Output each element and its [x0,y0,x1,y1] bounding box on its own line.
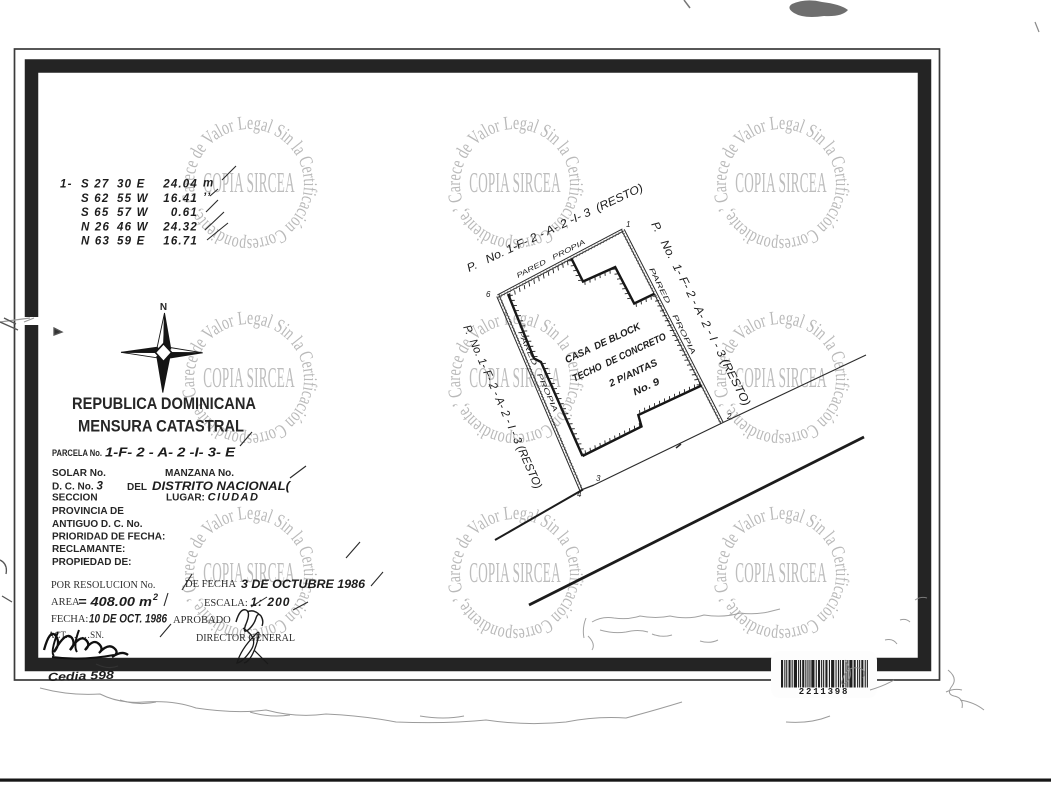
svg-text:ESCALA: 1: 200: ESCALA: 1: 200 [204,595,290,609]
svg-text:PRIORIDAD DE FECHA:: PRIORIDAD DE FECHA: [52,532,165,543]
svg-text:ANTIGUO D. C. No.: ANTIGUO D. C. No. [52,519,143,530]
svg-text:S 65: S 65 [81,207,109,219]
svg-text:MANZANA No.: MANZANA No. [165,468,234,479]
svg-text:LUGAR: CIUDAD: LUGAR: CIUDAD [166,492,259,504]
svg-text:PARCELA No.: PARCELA No. [52,448,102,459]
svg-text:2: 2 [726,412,732,421]
svg-text:30 E: 30 E [117,179,145,191]
svg-text:= 408.00 m: = 408.00 m [78,594,152,609]
svg-text:16.41: 16.41 [163,193,198,205]
svg-text:PROVINCIA DE: PROVINCIA DE [52,506,124,517]
svg-text:Cedia 598: Cedia 598 [48,670,115,684]
svg-text:59 E: 59 E [117,236,145,248]
svg-text:APROBADO: APROBADO [173,615,231,626]
svg-text:SOLAR No.: SOLAR No. [52,468,106,479]
svg-text:16.71: 16.71 [163,236,198,248]
svg-text:24.04: 24.04 [162,179,198,191]
svg-text:N: N [160,302,167,313]
svg-text:1-F- 2 - A- 2 -I- 3- E: 1-F- 2 - A- 2 -I- 3- E [105,446,236,460]
svg-text:SECCION: SECCION [52,493,98,504]
svg-text:MENSURA CATASTRAL: MENSURA CATASTRAL [78,418,244,436]
svg-text:N 26: N 26 [81,222,110,234]
svg-text:S 62: S 62 [81,193,109,205]
svg-text:0.61: 0.61 [171,207,198,219]
svg-text:1-: 1- [60,179,73,191]
svg-text:FECHA:: FECHA: [51,614,88,625]
svg-text:PROPIEDAD DE:: PROPIEDAD DE: [52,557,131,568]
svg-text:RECLAMANTE:: RECLAMANTE: [52,544,125,555]
svg-text:6: 6 [486,290,491,299]
svg-text:N 63: N 63 [81,236,110,248]
svg-text:D. C. No. 3: D. C. No. 3 [52,481,103,493]
svg-text:P. No. 1- F- 2 - A- 2 - I -: P. No. 1- F- 2 - A- 2 - I - 3 (RESTO) [648,220,752,408]
svg-text:POR RESOLUCION No.: POR RESOLUCION No. [51,580,155,591]
svg-text:24.32: 24.32 [162,222,198,234]
svg-text:57 W: 57 W [117,207,149,219]
svg-text:m: m [203,178,214,190]
svg-text:DEL: DEL [127,482,150,493]
svg-text:DIRECTOR GENERAL: DIRECTOR GENERAL [196,633,295,644]
svg-text:’’: ’’ [203,192,211,204]
svg-text:3 DE OCTUBRE 1986: 3 DE OCTUBRE 1986 [241,577,365,591]
svg-text:No. 9: No. 9 [631,376,661,398]
svg-text:REPUBLICA DOMINICANA: REPUBLICA DOMINICANA [72,395,256,413]
svg-text:46 W: 46 W [116,222,149,234]
svg-text:AREA: AREA [51,597,80,608]
svg-text:1: 1 [626,220,630,229]
svg-text:55 W: 55 W [117,193,149,205]
svg-text:2: 2 [152,592,158,602]
svg-text:S 27: S 27 [81,179,109,191]
svg-text:10 DE OCT. 1986: 10 DE OCT. 1986 [89,612,167,626]
svg-text:2211398: 2211398 [799,687,849,697]
svg-text:3: 3 [596,474,601,483]
svg-text:DE FECHA: DE FECHA [185,579,236,590]
